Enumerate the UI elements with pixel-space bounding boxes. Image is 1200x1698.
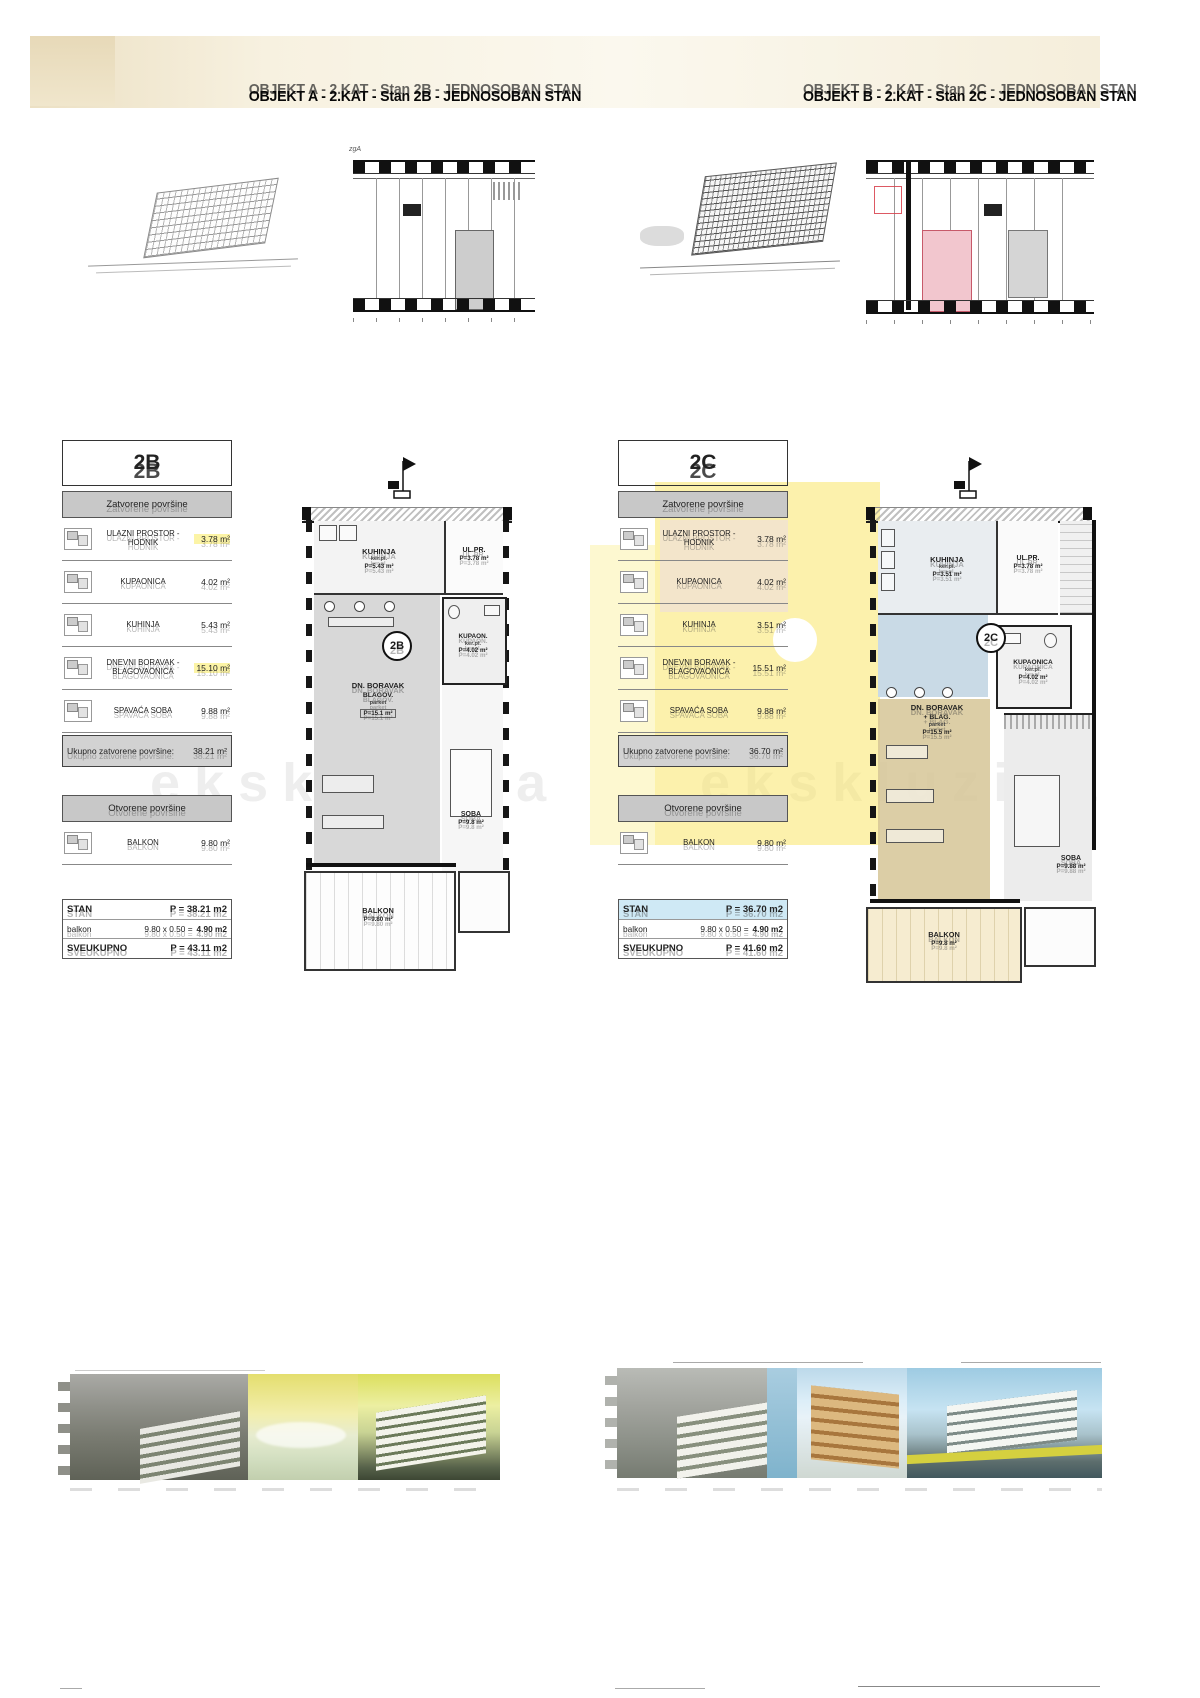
lower-terrace	[1024, 907, 1096, 967]
stair-core	[984, 204, 1002, 216]
building-shape	[376, 1395, 486, 1470]
room-area: 9.88 m²	[194, 706, 230, 716]
room-area: 3.51 m²	[750, 620, 786, 630]
counter	[886, 829, 944, 843]
wall-cap	[1083, 507, 1092, 520]
table-row: SPAVAĆA SOBA 9.88 m²	[62, 690, 232, 733]
partition-line	[978, 178, 979, 300]
room-name: ULAZNI PROSTOR - HODNIK	[651, 530, 747, 548]
room-area: P=3.51 m²	[904, 571, 990, 578]
room-living: DN. BORAVAK BLAGOV. parket P=15.1 m²	[314, 595, 440, 863]
exterior-wall	[353, 160, 535, 174]
room-finish: parket	[892, 722, 982, 729]
render-building-green	[358, 1374, 500, 1480]
row-plan-thumbnail	[64, 657, 92, 679]
room-area: 4.02 m²	[194, 577, 230, 587]
room-finish: ker.pl.	[904, 564, 990, 571]
room-area: 5.43 m²	[194, 620, 230, 630]
row-plan-thumbnail	[64, 700, 92, 722]
left-party-wall	[870, 520, 876, 910]
left-sheet-title: OBJEKT A - 2.KAT - Stan 2B - JEDNOSOBAN …	[249, 88, 542, 105]
north-arrow-icon	[952, 455, 986, 505]
summary-result: 4.90 m2	[197, 924, 227, 934]
living-label: DN. BORAVAK + BLAG. parket P=15.5 m²	[892, 703, 982, 736]
ground-line	[640, 261, 840, 269]
room-name: SOBA	[461, 811, 481, 818]
entry-wall-heavy	[906, 160, 911, 310]
blue-floor-zone	[878, 615, 988, 697]
stair-core	[403, 204, 421, 216]
summary-line-balkon: balkon 9.80 x 0.50 = 4.90 m2	[63, 920, 231, 939]
table-row: DNEVNI BORAVAK - BLAGOVAONICA 15.51 m²	[618, 647, 788, 690]
summary-name: STAN	[67, 904, 170, 915]
building-shape	[140, 1411, 240, 1484]
total-value: 38.21 m²	[193, 746, 227, 756]
row-plan-thumbnail	[620, 614, 648, 636]
exterior-wall	[866, 160, 1094, 174]
room-bedroom: SOBA P=9.8 m²	[442, 683, 503, 871]
room-bathroom: KUPAONICA ker.pl. P=4.02 m²	[996, 625, 1072, 709]
room-name: KUPAONICA	[651, 578, 747, 587]
room-name: SPAVAĆA SOBA	[95, 707, 191, 716]
sea-patch	[767, 1368, 797, 1478]
room-kitchen: KUHINJA ker.pl. P=3.51 m²	[878, 521, 998, 615]
bed	[450, 749, 492, 817]
exterior-wall	[866, 300, 1094, 314]
total-label: Ukupno zatvorene površine:	[623, 746, 730, 756]
sink	[1004, 633, 1021, 644]
shore-shape	[256, 1422, 346, 1448]
room-living: DN. BORAVAK + BLAG. parket P=15.5 m²	[878, 699, 990, 899]
partition-line	[376, 178, 377, 298]
summary-box: STAN P = 38.21 m2 balkon 9.80 x 0.50 = 4…	[62, 899, 232, 959]
chair	[324, 601, 335, 612]
summary-name: SVEUKUPNO	[67, 943, 170, 954]
summary-line-total: SVEUKUPNO P = 41.60 m2	[619, 939, 787, 958]
bedroom-label: SOBA P=9.8 m²	[444, 811, 498, 827]
interior-line	[353, 178, 535, 179]
unit-badge: 2C	[976, 623, 1006, 653]
room-area: P=3.78 m²	[450, 555, 498, 562]
room-area: P=9.80 m²	[330, 916, 426, 923]
open-surfaces-header: Otvorene površine	[62, 795, 232, 822]
summary-name: balkon	[67, 924, 144, 934]
room-name: ULAZNI PROSTOR - HODNIK	[95, 530, 191, 548]
building-mass	[691, 162, 837, 255]
right-area-table: 2C Zatvorene površine ULAZNI PROSTOR - H…	[618, 440, 788, 959]
room-area: 15.51 m²	[750, 663, 786, 673]
room-name: SOBA	[1061, 855, 1081, 862]
kitchen-counter	[881, 529, 895, 547]
dimension-ticks	[866, 320, 1094, 324]
right-axonometric-sketch	[640, 168, 845, 286]
ground-line	[88, 258, 298, 266]
sofa	[322, 815, 384, 829]
red-annotation-box	[874, 186, 902, 214]
partition-line	[399, 178, 400, 298]
open-surfaces-header: Otvorene površine	[618, 795, 788, 822]
balcony: BALKON P=9.8 m²	[866, 907, 1022, 983]
right-key-plan	[858, 146, 1100, 332]
closed-surfaces-header: Zatvorene površine	[62, 491, 232, 518]
bathroom-label: KUPAONICA ker.pl. P=4.02 m²	[1000, 659, 1066, 681]
toilet	[1044, 633, 1057, 648]
room-finish: ker.pl.	[1000, 667, 1066, 674]
room-name: BALKON	[651, 839, 747, 848]
table-row: DNEVNI BORAVAK - BLAGOVAONICA 15.10 m²	[62, 647, 232, 690]
summary-name: SVEUKUPNO	[623, 943, 726, 954]
table-row-balkon: BALKON 9.80 m²	[62, 822, 232, 865]
room-name: UL.PR.	[463, 547, 486, 554]
left-unit-floor-plan: KUHINJA ker.pl. P=5.43 m² UL.PR. P=3.78 …	[300, 455, 515, 985]
table-row: KUPAONICA 4.02 m²	[618, 561, 788, 604]
room-area: P=9.88 m²	[1052, 863, 1090, 870]
kitchen-counter	[881, 573, 895, 591]
room-area: P=15.5 m²	[892, 729, 982, 736]
wall-cap	[302, 507, 311, 520]
summary-calc: 9.80 x 0.50 =	[700, 924, 748, 934]
row-plan-thumbnail	[620, 528, 648, 550]
bottom-wall	[870, 899, 1020, 903]
row-plan-thumbnail	[620, 700, 648, 722]
room-area: 3.78 m²	[750, 534, 786, 544]
table-row-balkon: BALKON 9.80 m²	[618, 822, 788, 865]
right-facade-wall	[1092, 520, 1096, 850]
entry-label: UL.PR. P=3.78 m²	[450, 547, 498, 563]
summary-result: P = 41.60 m2	[726, 943, 783, 954]
left-facade-wall	[306, 520, 312, 910]
room-area: 9.80 m²	[750, 838, 786, 848]
ground-line	[650, 268, 835, 275]
interior-line	[866, 178, 1094, 179]
balcony-label: BALKON P=9.8 m²	[898, 931, 990, 947]
room-finish: parket	[328, 700, 428, 707]
kitchen-counter	[339, 525, 357, 541]
bed	[1014, 775, 1060, 847]
room-area: 3.78 m²	[194, 534, 230, 544]
row-plan-thumbnail	[64, 832, 92, 854]
right-party-wall	[503, 520, 509, 910]
terrain-smudge	[640, 226, 684, 246]
kitchen-counter	[319, 525, 337, 541]
summary-box: STAN P = 36.70 m2 balkon 9.80 x 0.50 = 4…	[618, 899, 788, 959]
room-name: KUPAONICA	[1013, 659, 1052, 666]
table-row: KUPAONICA 4.02 m²	[62, 561, 232, 604]
room-entry: UL.PR. P=3.78 m²	[998, 521, 1058, 615]
unit-code: 2C	[618, 440, 788, 486]
room-finish: ker.pl.	[336, 556, 422, 563]
room-area: P=4.02 m²	[1000, 674, 1066, 681]
footer-mark	[60, 1688, 82, 1689]
chair	[942, 687, 953, 698]
room-name: BALKON	[362, 906, 394, 915]
living-label: DN. BORAVAK BLAGOV. parket P=15.1 m²	[328, 681, 428, 718]
room-area: P=5.43 m²	[336, 563, 422, 570]
building-shape	[947, 1390, 1077, 1456]
divider-line	[75, 1370, 265, 1371]
room-entry: UL.PR. P=3.78 m²	[446, 521, 503, 595]
room-name: DNEVNI BORAVAK - BLAGOVAONICA	[651, 659, 747, 677]
render-aerial-gray-blue	[617, 1368, 797, 1478]
room-bathroom: KUPAON. ker.pl. P=4.02 m²	[442, 597, 507, 685]
summary-line-balkon: balkon 9.80 x 0.50 = 4.90 m2	[619, 920, 787, 939]
floor-plan-sheet: OBJEKT A - 2.KAT - Stan 2B - JEDNOSOBAN …	[0, 0, 1200, 1698]
right-unit-floor-plan: KUHINJA ker.pl. P=3.51 m² UL.PR. P=3.78 …	[858, 455, 1100, 985]
room-area: P=9.8 m²	[444, 819, 498, 826]
room-finish: ker.pl.	[446, 641, 500, 648]
row-plan-thumbnail	[620, 571, 648, 593]
render-aerial-gray	[70, 1374, 248, 1480]
partition-line	[422, 178, 423, 298]
left-axonometric-sketch	[88, 180, 303, 285]
header-corner-block	[30, 36, 115, 106]
closet-strip	[1060, 521, 1092, 615]
summary-name: balkon	[623, 924, 700, 934]
render-building-blue	[907, 1368, 1102, 1478]
room-bedroom: SOBA P=9.88 m²	[1004, 713, 1092, 901]
balcony: BALKON P=9.80 m²	[304, 871, 456, 971]
kitchen-counter	[881, 551, 895, 569]
table-row: SPAVAĆA SOBA 9.88 m²	[618, 690, 788, 733]
dimension-ticks	[353, 318, 535, 322]
stair-hatch	[493, 182, 523, 200]
right-sheet-title: OBJEKT B - 2.KAT - Stan 2C - JEDNOSOBAN …	[803, 88, 1100, 105]
divider-line	[673, 1362, 863, 1363]
counter	[886, 789, 934, 803]
summary-line-stan: STAN P = 38.21 m2	[63, 900, 231, 920]
room-area: P=3.78 m²	[1004, 563, 1052, 570]
total-label: Ukupno zatvorene površine:	[67, 746, 174, 756]
room-name: DN. BORAVAK	[352, 681, 404, 690]
unit-code: 2B	[62, 440, 232, 486]
room-name: SPAVAĆA SOBA	[651, 707, 747, 716]
room-name: DNEVNI BORAVAK - BLAGOVAONICA	[95, 659, 191, 677]
room-name: BALKON	[928, 930, 960, 939]
room-name: KUPAONICA	[95, 578, 191, 587]
wall-cap	[866, 507, 875, 520]
table-row: ULAZNI PROSTOR - HODNIK 3.78 m²	[618, 518, 788, 561]
room-area: P=15.1 m²	[360, 709, 395, 718]
right-render-strip	[617, 1368, 1102, 1478]
closed-surfaces-header: Zatvorene površine	[618, 491, 788, 518]
north-arrow-icon	[386, 455, 420, 505]
sofa	[322, 775, 374, 793]
building-shape	[811, 1385, 899, 1468]
room-name: KUHINJA	[930, 555, 964, 564]
bathroom-label: KUPAON. ker.pl. P=4.02 m²	[446, 633, 500, 655]
render-building-tan	[797, 1368, 907, 1478]
chair	[384, 601, 395, 612]
partition-line	[445, 178, 446, 298]
room-name-2: BLAGOV.	[363, 692, 393, 699]
row-plan-thumbnail	[64, 571, 92, 593]
chair	[886, 687, 897, 698]
summary-result: P = 36.70 m2	[726, 904, 783, 915]
table-row: KUHINJA 3.51 m²	[618, 604, 788, 647]
row-plan-thumbnail	[64, 528, 92, 550]
lower-terrace	[458, 871, 510, 933]
ground-line	[96, 266, 291, 274]
left-render-strip	[70, 1374, 500, 1480]
row-plan-thumbnail	[64, 614, 92, 636]
summary-result: 4.90 m2	[753, 924, 783, 934]
room-name: DN. BORAVAK	[911, 703, 963, 712]
kitchen-label: KUHINJA ker.pl. P=5.43 m²	[336, 547, 422, 570]
room-name: BALKON	[95, 839, 191, 848]
closed-total-row: Ukupno zatvorene površine: 38.21 m²	[62, 735, 232, 767]
building-mass	[143, 178, 279, 259]
bottom-wall	[306, 863, 456, 867]
table-row: ULAZNI PROSTOR - HODNIK 3.78 m²	[62, 518, 232, 561]
partition-line	[1006, 178, 1007, 300]
chair	[914, 687, 925, 698]
dining-table	[328, 617, 394, 627]
room-area: 9.88 m²	[750, 706, 786, 716]
unit-badge: 2B	[382, 631, 412, 661]
bedroom-label: SOBA P=9.88 m²	[1052, 855, 1090, 871]
left-key-plan: zgA	[345, 146, 541, 332]
toilet	[448, 605, 460, 619]
entry-label: UL.PR. P=3.78 m²	[1004, 555, 1052, 571]
row-plan-thumbnail	[620, 657, 648, 679]
kitchen-label: KUHINJA ker.pl. P=3.51 m²	[904, 555, 990, 578]
wardrobe-hatch	[1004, 715, 1092, 729]
closed-total-row: Ukupno zatvorene površine: 36.70 m²	[618, 735, 788, 767]
room-name-2: + BLAG.	[923, 714, 950, 721]
room-kitchen: KUHINJA ker.pl. P=5.43 m²	[314, 521, 446, 595]
total-value: 36.70 m²	[749, 746, 783, 756]
chair	[354, 601, 365, 612]
divider-line	[961, 1362, 1101, 1363]
summary-result: P = 43.11 m2	[170, 943, 227, 954]
partition-line	[1062, 178, 1063, 300]
render-beach-yellow	[248, 1374, 358, 1480]
room-name: UL.PR.	[1017, 555, 1040, 562]
exterior-wall	[353, 298, 535, 312]
room-name: KUHINJA	[651, 621, 747, 630]
row-plan-thumbnail	[620, 832, 648, 854]
sink	[484, 605, 500, 616]
summary-calc: 9.80 x 0.50 =	[144, 924, 192, 934]
cropped-photo-row	[70, 1488, 500, 1491]
left-area-table: 2B Zatvorene površine ULAZNI PROSTOR - H…	[62, 440, 232, 959]
table-row: KUHINJA 5.43 m²	[62, 604, 232, 647]
summary-result: P = 38.21 m2	[170, 904, 227, 915]
counter	[886, 745, 928, 759]
room-name: KUPAON.	[459, 633, 488, 640]
room-area: 4.02 m²	[750, 577, 786, 587]
room-area: 9.80 m²	[194, 838, 230, 848]
footer-line	[858, 1686, 1100, 1687]
footer-line	[615, 1688, 705, 1689]
summary-name: STAN	[623, 904, 726, 915]
ragged-edge	[605, 1376, 617, 1476]
room-name: KUHINJA	[95, 621, 191, 630]
room-area: P=9.8 m²	[898, 940, 990, 947]
room-name: KUHINJA	[362, 547, 396, 556]
room-area: 15.10 m²	[194, 663, 230, 673]
cropped-photo-row	[617, 1488, 1102, 1491]
room-area: P=4.02 m²	[446, 647, 500, 654]
summary-line-stan: STAN P = 36.70 m2	[619, 900, 787, 920]
secondary-unit	[1008, 230, 1048, 298]
ragged-edge	[58, 1382, 70, 1480]
wall-cap	[503, 507, 512, 520]
summary-line-total: SVEUKUPNO P = 43.11 m2	[63, 939, 231, 958]
key-plan-label: zgA	[349, 146, 361, 153]
balcony-label: BALKON P=9.80 m²	[330, 907, 426, 923]
